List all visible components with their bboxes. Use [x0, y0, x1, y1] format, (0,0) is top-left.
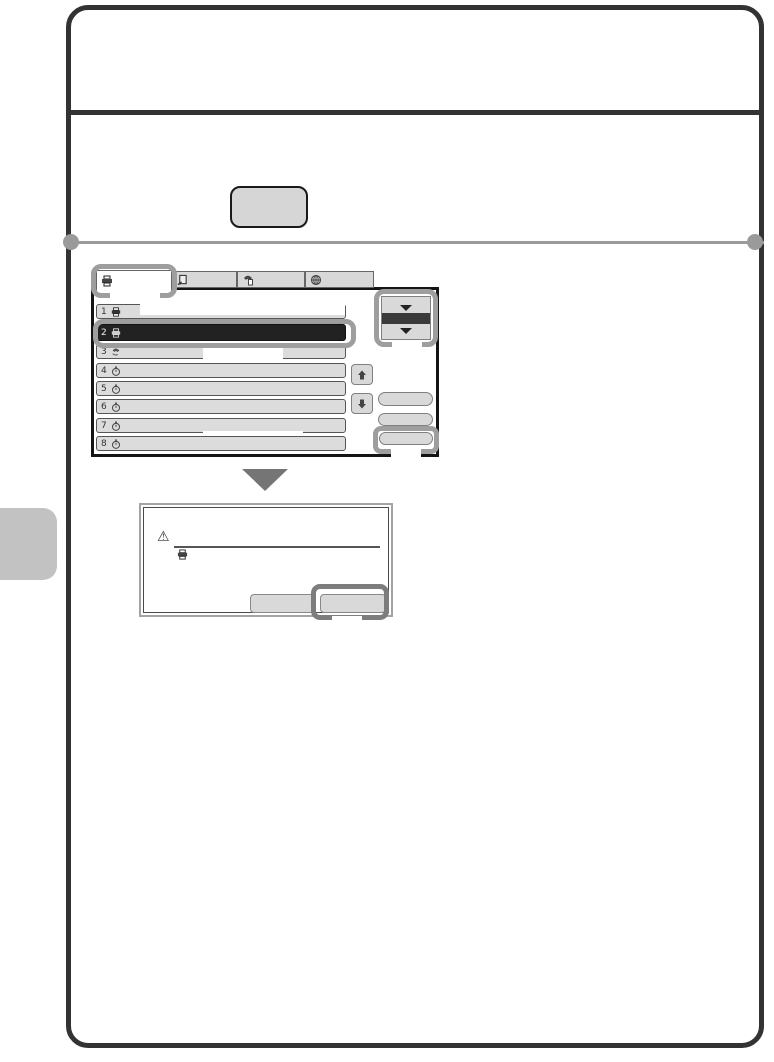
- text-redaction: [140, 302, 345, 315]
- callout-ring-gap: [110, 291, 160, 300]
- side-button-1[interactable]: [378, 392, 433, 406]
- hardware-key-button[interactable]: [230, 186, 308, 228]
- internet-fax-globe-icon: [310, 274, 322, 286]
- tab-internet-fax[interactable]: [305, 271, 374, 288]
- waiting-timer-icon: [111, 402, 121, 412]
- row-number: 1: [101, 307, 107, 317]
- tab-fax-job[interactable]: [237, 271, 305, 288]
- tab-scan-send[interactable]: [172, 271, 237, 288]
- callout-ring-gap: [392, 341, 422, 351]
- chapter-edge-tab: [0, 508, 57, 580]
- waiting-timer-icon: [111, 439, 121, 449]
- job-row-8[interactable]: 8: [96, 436, 346, 451]
- callout-ring-dialog-button: [311, 584, 389, 620]
- text-redaction: [203, 431, 303, 436]
- callout-ring-gap: [391, 447, 421, 457]
- manual-page: 1 2 3 4 5 6 7: [0, 0, 774, 1062]
- row-number: 4: [101, 366, 107, 376]
- job-row-4[interactable]: 4: [96, 363, 346, 378]
- up-arrow-icon: [356, 369, 368, 381]
- step-divider-line: [66, 241, 764, 244]
- print-job-icon: [111, 307, 121, 317]
- scroll-down-key[interactable]: [351, 393, 373, 414]
- document-send-icon: [177, 274, 188, 286]
- fax-phone-icon: [242, 274, 254, 286]
- step-dot-left: [63, 234, 79, 250]
- waiting-timer-icon: [111, 366, 121, 376]
- phone-job-icon: [111, 347, 121, 357]
- callout-ring-selected-job: [93, 319, 356, 348]
- callout-ring-scroll-display: [374, 289, 438, 347]
- warning-icon: ⚠: [157, 530, 170, 544]
- job-row-6[interactable]: 6: [96, 399, 346, 414]
- print-job-icon: [177, 549, 188, 560]
- flow-down-arrow: [242, 469, 288, 491]
- message-underline: [174, 546, 380, 548]
- row-number: 3: [101, 347, 107, 357]
- scroll-up-key[interactable]: [351, 364, 373, 385]
- callout-ring-gap: [332, 616, 362, 623]
- row-number: 6: [101, 402, 107, 412]
- row-number: 5: [101, 384, 107, 394]
- waiting-timer-icon: [111, 421, 121, 431]
- job-row-5[interactable]: 5: [96, 381, 346, 396]
- row-number: 8: [101, 439, 107, 449]
- down-arrow-icon: [356, 398, 368, 410]
- step-dot-right: [747, 234, 763, 250]
- side-button-2[interactable]: [378, 413, 433, 426]
- waiting-timer-icon: [111, 384, 121, 394]
- dialog-left-button[interactable]: [250, 594, 316, 613]
- header-divider: [66, 110, 764, 115]
- row-number: 7: [101, 421, 107, 431]
